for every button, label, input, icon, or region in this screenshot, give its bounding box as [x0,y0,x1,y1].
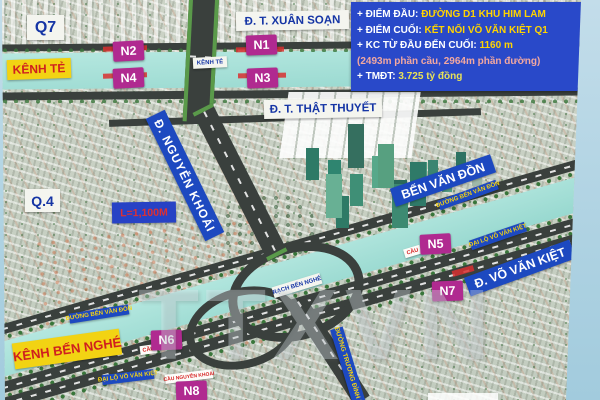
node-badge-n2: N2 [112,40,144,62]
district-label-q4: Q.4 [25,189,60,212]
node-badge-n1: N1 [246,34,278,55]
node-badge-n3: N3 [247,67,279,88]
kenh-te-small-label: KÊNH TẺ [193,56,228,69]
length-label: L=1,100M [112,201,176,223]
district-label-q7: Q7 [27,15,64,40]
map-board: Q7 Q.4 KÊNH TẺ KÊNH TẺ KÊNH BẾN NGHÉ RẠC… [0,0,600,400]
highrise-towers [306,148,319,180]
info-line-cost: + TMĐT: 3.725 tỷ đồng [357,69,588,85]
project-info-panel: + ĐIỂM ĐẦU: ĐƯỜNG D1 KHU HIM LAM + ĐIỂM … [351,2,594,91]
node-badge-n7: N7 [432,280,464,301]
node-badge-n6: N6 [151,329,183,350]
info-line-breakdown: (2493m phần cầu, 2964m phần đường) [357,54,588,70]
xuan-soan-label: Đ. T. XUÂN SOẠN [236,10,349,31]
kenh-te-label: KÊNH TẺ [7,58,72,80]
info-line-distance: + KC TỪ ĐẦU ĐẾN CUỐI: 1160 m [357,38,588,54]
node-badge-n4: N4 [112,67,144,89]
info-line-start: + ĐIỂM ĐẦU: ĐƯỜNG D1 KHU HIM LAM [357,7,588,23]
photo-credit-sliver [428,393,498,400]
info-line-end: + ĐIỂM CUỐI: KẾT NỐI VÕ VĂN KIỆT Q1 [357,23,588,39]
that-thuyet-label: Đ. T. THẬT THUYẾT [264,98,382,119]
node-badge-n5: N5 [419,233,451,255]
node-badge-n8: N8 [176,380,208,400]
highrise-towers [348,124,364,168]
photo-of-project-map-board: Q7 Q.4 KÊNH TẺ KÊNH TẺ KÊNH BẾN NGHÉ RẠC… [0,0,600,400]
